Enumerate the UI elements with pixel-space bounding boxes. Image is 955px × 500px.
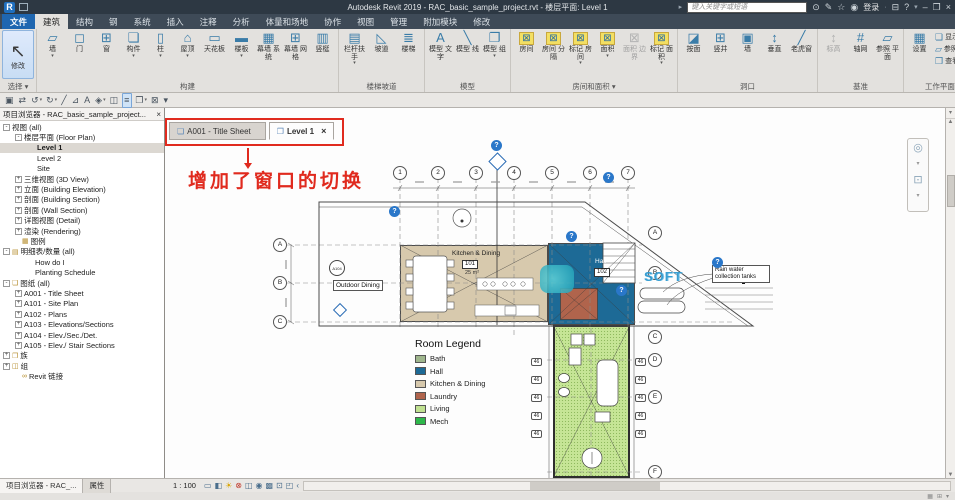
tree-item-icon: ▤ (12, 248, 19, 256)
tab-properties[interactable]: 属性 (83, 479, 111, 493)
annotation-text: 增加了窗口的切换 (188, 166, 364, 193)
view-control-icon[interactable]: ◫ (245, 480, 253, 492)
tree-item[interactable]: + ❐ 族 (0, 351, 164, 361)
tool-icon: ↕ (830, 30, 837, 46)
tool-icon: ⊞ (290, 30, 301, 46)
ribbon-tool[interactable]: ⊠ 面积 边界 (621, 30, 648, 61)
ribbon-tool[interactable]: ▦ 设置 (906, 30, 933, 54)
tree-item-icon: ❐ (12, 352, 18, 360)
grid-bubble: A (648, 226, 662, 240)
grid-bubble: 3 (469, 166, 483, 180)
modify-button[interactable]: ↖ 修改 (2, 30, 34, 79)
window-tag[interactable]: 46 (635, 358, 646, 366)
tool-icon: ❏ (935, 33, 943, 42)
tree-item[interactable]: ▦ 图例 (0, 236, 164, 246)
ribbon-tool[interactable]: ▱ 参照 平面 (935, 44, 955, 54)
view-control-icon[interactable]: ◧ (215, 480, 223, 492)
tool-icon: ▣ (741, 30, 753, 46)
expand-icon[interactable]: + (15, 290, 22, 297)
ribbon-tool[interactable]: ⊠ 房间 分隔 (540, 30, 567, 61)
tool-icon: ⊠ (546, 32, 561, 45)
qat-button[interactable]: ↻ ▾ (45, 94, 58, 107)
tree-item[interactable]: + A102 - Plans (0, 309, 164, 319)
tool-icon: ⊠ (654, 32, 669, 45)
chevron-down-icon: ▾ (606, 54, 609, 59)
tool-icon: A (436, 30, 445, 46)
grid-bubble: F (648, 465, 662, 478)
qat-button[interactable]: ▣ (4, 94, 16, 107)
ribbon-group-opening: ◪ 按面 ⊞ 竖井 ▣ 墙 ↕ 垂直 (678, 29, 818, 92)
tree-item[interactable]: + A101 - Site Plan (0, 299, 164, 309)
view-control-icon[interactable]: ◰ (286, 480, 294, 492)
tool-icon: ▦ (913, 30, 925, 46)
room-tag[interactable]: 102 (594, 268, 610, 277)
expand-icon[interactable]: + (3, 352, 10, 359)
qat-icon: ≡ (124, 94, 129, 107)
qat-icon: ▾ (164, 94, 169, 107)
ribbon-tab[interactable]: 建筑 (35, 14, 68, 29)
tree-item[interactable]: - ❏ 图纸 (all) (0, 278, 164, 288)
qat-icon: ⊠ (151, 94, 159, 107)
room-label[interactable]: Hall (595, 258, 606, 265)
tool-icon: ▱ (935, 45, 942, 54)
view-control-icon[interactable]: ⊡ (276, 480, 283, 492)
expand-icon[interactable]: + (15, 176, 22, 183)
window-tag[interactable]: 46 (531, 376, 542, 384)
chevron-down-icon: ▾ (186, 54, 189, 59)
view-control-icon[interactable]: ‹ (296, 480, 299, 492)
app-store-dropdown-icon[interactable]: · (884, 4, 886, 11)
legend-swatch (415, 380, 426, 388)
navigation-bar[interactable]: ◎ ▾ ⊡ ▾ (907, 138, 929, 212)
chevron-down-icon: ▾ (132, 54, 135, 59)
tree-item[interactable]: + 详图视图 (Detail) (0, 216, 164, 226)
project-browser-tree: - 视图 (all) - 楼层平面 (Floor Plan) Level 1 (0, 121, 164, 478)
tool-icon: ↕ (771, 30, 778, 46)
grid-bubble: C (273, 315, 287, 329)
ribbon-group-circulation: ▤ 栏杆扶手 ▾ ◺ 坡道 ≣ 楼梯 楼梯坡道 (339, 29, 425, 92)
ribbon-tab[interactable]: 修改 (465, 14, 498, 29)
ribbon-tool[interactable]: ↕ 垂直 (761, 30, 788, 54)
expand-icon[interactable]: + (15, 321, 22, 328)
ribbon-tool[interactable]: ▭ 天花板 (201, 30, 228, 54)
tree-item[interactable]: + 三维视图 (3D View) (0, 174, 164, 184)
app-store-cart-icon[interactable]: ⊟ (892, 1, 900, 13)
help-marker-icon[interactable]: ? (566, 231, 577, 242)
help-dropdown-icon[interactable]: ▾ (914, 3, 918, 11)
tree-item[interactable]: - ▤ 明细表/数量 (all) (0, 247, 164, 257)
ribbon-tab-bar: 文件 建筑 结构 钢 系统 插入 注释 分析 体量和场地 协作 视图 管理 附加… (0, 14, 955, 29)
tree-item[interactable]: Site (0, 164, 164, 174)
tree-item[interactable]: Planting Schedule (0, 267, 164, 277)
modify-cursor-icon: ↖ (10, 39, 25, 63)
help-marker-icon[interactable]: ? (712, 257, 723, 268)
ribbon-tool[interactable]: ◺ 坡道 (368, 30, 395, 54)
status-bar: ▦ ⊞ ▾ (0, 492, 955, 500)
annotation-arrow (247, 148, 249, 164)
tool-icon: ▤ (348, 30, 360, 46)
ribbon-group-build: ▱ 墙 ▾ ◻ 门 ⊞ 窗 ❏ 构件 (37, 29, 339, 92)
room-legend: Room Legend Bath Hall (415, 338, 485, 429)
tree-item[interactable]: How do I (0, 257, 164, 267)
ribbon-tab[interactable]: 分析 (225, 14, 258, 29)
signin-label[interactable]: 登录 (863, 2, 879, 13)
design-options-icon[interactable]: ⊞ (937, 493, 942, 500)
window-tag-column: 4646464646 (635, 358, 646, 438)
ribbon-tool[interactable]: ▣ 墙 (734, 30, 761, 54)
qat-button[interactable]: ❐ ▾ (134, 94, 148, 107)
tree-item[interactable]: + A001 - Title Sheet (0, 288, 164, 298)
ribbon-tool[interactable]: ▥ 竖梃 (309, 30, 336, 54)
room-area-label: 25 m² (465, 270, 479, 276)
qat-icon: ⇄ (19, 94, 27, 107)
panel-tabs: 项目浏览器 - RAC_... 属性 (0, 479, 165, 493)
search-expand-icon[interactable]: ▸ (679, 3, 683, 11)
tree-item[interactable]: Level 2 (0, 153, 164, 163)
help-marker-icon[interactable]: ? (389, 206, 400, 217)
window-tag[interactable]: 46 (531, 430, 542, 438)
legend-swatch (415, 405, 426, 413)
ribbon-tab[interactable]: 文件 (2, 14, 35, 29)
window-tag[interactable]: 46 (635, 394, 646, 402)
ribbon-group-room-area: ⊠ 房间 ⊠ 房间 分隔 ⊠ 标记 房间 ▾ ⊠ (511, 29, 678, 92)
ribbon-tab[interactable]: 钢 (101, 14, 126, 29)
view-control-icon[interactable]: ◉ (256, 480, 263, 492)
chevron-down-icon: ▾ (159, 54, 162, 59)
chevron-down-icon: ▾ (353, 61, 356, 66)
ribbon-tool[interactable]: ⊠ 标记 房间 ▾ (567, 30, 594, 66)
window-tag[interactable]: 46 (635, 430, 646, 438)
tree-item[interactable]: Level 1 (0, 143, 164, 153)
grid-bubble: D (648, 353, 662, 367)
ribbon-tab[interactable]: 管理 (382, 14, 415, 29)
qat-icon: ↺ (31, 94, 39, 107)
legend-entry: Mech (415, 417, 485, 426)
ribbon-tool[interactable]: ⊠ 面积 ▾ (594, 30, 621, 59)
tool-icon: ╲ (464, 30, 472, 46)
search-input[interactable]: 键入关键字或短语 (687, 2, 807, 13)
legend-entry: Bath (415, 354, 485, 363)
qat-icon: ⊿ (72, 94, 80, 107)
window-switch-icon[interactable] (19, 3, 28, 11)
ribbon-tab[interactable]: 协作 (316, 14, 349, 29)
grid-bubble: C (648, 330, 662, 344)
outdoor-dining-label[interactable]: Outdoor Dining (333, 280, 383, 291)
chevron-down-icon[interactable]: ▾ (916, 190, 919, 202)
room-label[interactable]: Kitchen & Dining (452, 250, 500, 257)
qat-icon: ╱ (61, 94, 66, 107)
tree-item[interactable]: - 视图 (all) (0, 122, 164, 132)
view-scale[interactable]: 1 : 100 (165, 481, 204, 490)
ribbon-tool[interactable]: ⊠ 标记 面积 ▾ (648, 30, 675, 66)
help-marker-icon[interactable]: ? (603, 172, 614, 183)
grid-bubble: 4 (507, 166, 521, 180)
expand-icon[interactable]: + (15, 196, 22, 203)
ribbon-tool[interactable]: ╱ 老虎窗 (788, 30, 815, 54)
window-tag[interactable]: 46 (531, 412, 542, 420)
help-marker-icon[interactable]: ? (616, 285, 627, 296)
tool-icon: ❒ (935, 57, 943, 66)
zoom-cube-icon[interactable]: ⊡ (913, 174, 922, 186)
qat-icon: ◈ (95, 94, 102, 107)
ribbon-group-label: 构建 (39, 81, 336, 92)
tool-icon: ▦ (262, 30, 274, 46)
ribbon-tool[interactable]: ⊞ 窗 (93, 30, 120, 54)
chevron-down-icon: ▾ (103, 94, 106, 107)
tree-item-icon: ❏ (12, 279, 18, 287)
ribbon-tool[interactable]: ❏ 构件 ▾ (120, 30, 147, 59)
ribbon-tool[interactable]: ▱ 墙 ▾ (39, 30, 66, 59)
quick-access-toolbar: ▣ ⇄ ↺ ▾ ↻ ▾ ╱ ⊿ A ◈ (0, 93, 955, 108)
ribbon-tool[interactable]: ▤ 栏杆扶手 ▾ (341, 30, 368, 66)
grid-bubble: 1 (393, 166, 407, 180)
ribbon-tool[interactable]: ▬ 楼板 ▾ (228, 30, 255, 59)
window-tag[interactable]: 46 (531, 358, 542, 366)
grid-bubble: 7 (621, 166, 635, 180)
grid-bubble: B (273, 276, 287, 290)
expand-icon[interactable]: + (15, 207, 22, 214)
tool-icon: ⊞ (101, 30, 112, 46)
rain-water-note[interactable]: Rain water collection tanks (712, 265, 770, 283)
expand-icon[interactable]: + (15, 217, 22, 224)
tool-icon: ❏ (128, 30, 140, 46)
ribbon: ↖ 修改 选择 ▾ ▱ 墙 ▾ ◻ 门 (0, 29, 955, 93)
view-control-icon[interactable]: ▭ (204, 480, 212, 492)
column-grid-bubbles: 1234567 (393, 166, 635, 180)
scroll-up-icon[interactable]: ▲ (948, 119, 954, 125)
minimize-icon[interactable]: – (923, 1, 928, 13)
qat-button[interactable]: ◈ ▾ (94, 94, 106, 107)
tree-item[interactable]: + 剖面 (Building Section) (0, 195, 164, 205)
legend-swatch (415, 392, 426, 400)
view-control-icon[interactable]: ⊗ (235, 480, 242, 492)
ribbon-tool[interactable]: ⊠ 房间 (513, 30, 540, 54)
chevron-down-icon: ▾ (240, 54, 243, 59)
view-control-icon[interactable]: ▩ (265, 480, 273, 492)
ribbon-tab[interactable]: 视图 (349, 14, 382, 29)
ribbon-group-select: ↖ 修改 选择 ▾ (0, 29, 37, 92)
search-icon[interactable]: ⊙ (812, 1, 820, 13)
watermark: SOFT (644, 269, 683, 284)
tab-project-browser[interactable]: 项目浏览器 - RAC_... (0, 479, 83, 493)
worksets-icon[interactable]: ▦ (927, 493, 933, 500)
scrollbar-thumb[interactable] (947, 175, 955, 207)
tree-item[interactable]: + A103 - Elevations/Sections (0, 319, 164, 329)
ribbon-tool[interactable]: ❏ 显示 (935, 32, 955, 42)
qat-button[interactable]: ↺ ▾ (30, 94, 43, 107)
tree-item[interactable]: - 楼层平面 (Floor Plan) (0, 132, 164, 142)
grid-bubble: 6 (583, 166, 597, 180)
ribbon-group-label[interactable]: 房间和面积 ▾ (513, 81, 675, 92)
ribbon-tool[interactable]: ◪ 按面 (680, 30, 707, 54)
legend-entry: Living (415, 404, 485, 413)
chevron-down-icon: ▾ (55, 94, 58, 107)
project-browser-title: 项目浏览器 - RAC_basic_sample_project... × (0, 108, 164, 121)
bottom-bar: 项目浏览器 - RAC_... 属性 1 : 100 ▭ ◧ ☀ ⊗ ◫ ◉ ▩… (0, 478, 955, 492)
qat-button[interactable]: ⊠ (150, 94, 161, 107)
qat-button[interactable]: ⇄ (18, 94, 29, 107)
qat-icon: ❐ (135, 94, 143, 107)
close-icon[interactable]: × (156, 110, 161, 119)
room-legend-title: Room Legend (415, 338, 485, 350)
ribbon-tab[interactable]: 附加模块 (415, 14, 465, 29)
ribbon-tool[interactable]: ╲ 模型 线 (454, 30, 481, 54)
grid-bubble: 5 (545, 166, 559, 180)
qat-icon: A (84, 94, 90, 107)
legend-entry: Laundry (415, 392, 485, 401)
ribbon-tab[interactable]: 插入 (159, 14, 192, 29)
ribbon-tool[interactable]: ❐ 模型 组 ▾ (481, 30, 508, 59)
chevron-down-icon: ▾ (579, 61, 582, 66)
window-tag[interactable]: 46 (531, 394, 542, 402)
detail-callout-marker[interactable]: A104 (329, 260, 345, 276)
ribbon-tab[interactable]: 结构 (68, 14, 101, 29)
qat-icon: ↻ (46, 94, 54, 107)
tool-icon: # (857, 30, 864, 46)
legend-swatch (415, 417, 426, 425)
ribbon-tool[interactable]: ⊞ 幕墙 网格 (282, 30, 309, 61)
chevron-down-icon: ▾ (660, 61, 663, 66)
filter-icon[interactable]: ▾ (946, 493, 949, 500)
room-tag[interactable]: 101 (462, 260, 478, 269)
tool-icon: ◺ (377, 30, 387, 46)
ribbon-tool[interactable]: ⌂ 屋顶 ▾ (174, 30, 201, 59)
restore-icon[interactable]: ❐ (933, 1, 941, 13)
tool-icon: ▱ (48, 30, 58, 46)
tree-item[interactable]: + 立面 (Building Elevation) (0, 184, 164, 194)
ribbon-group-label[interactable]: 选择 ▾ (2, 81, 34, 92)
expand-icon[interactable]: - (15, 134, 22, 141)
expand-icon[interactable]: - (3, 248, 10, 255)
ribbon-group-label: 模型 (427, 81, 508, 92)
tool-icon: ◻ (74, 30, 85, 46)
account-icon[interactable]: ◉ (850, 1, 858, 13)
ribbon-group-label: 工作平面 (906, 81, 955, 92)
ribbon-tool[interactable]: # 轴网 (847, 30, 874, 54)
qat-icon: ▣ (5, 94, 14, 107)
qat-button[interactable]: ◫ (109, 94, 121, 107)
view-control-icon[interactable]: ☀ (225, 480, 232, 492)
tool-icon: ▱ (883, 30, 893, 46)
expand-icon[interactable]: + (15, 342, 22, 349)
ribbon-tool[interactable]: ▯ 柱 ▾ (147, 30, 174, 59)
feedback-icon[interactable]: ✎ (825, 1, 833, 13)
tool-icon: ▬ (235, 30, 248, 46)
ribbon-tool[interactable]: ↕ 标高 (820, 30, 847, 54)
chevron-down-icon[interactable]: ▾ (916, 158, 919, 170)
selected-element-highlight[interactable] (540, 265, 574, 293)
revit-logo-icon[interactable]: R (4, 2, 15, 13)
expand-icon[interactable]: + (15, 332, 22, 339)
expand-icon[interactable]: + (3, 363, 10, 370)
annotation-highlight-box (165, 118, 344, 146)
tool-icon: ▯ (157, 30, 164, 46)
tool-icon: ❐ (489, 30, 501, 46)
window-tag-column: 4646464646 (531, 358, 542, 438)
qat-button[interactable]: ≡ (122, 93, 132, 108)
help-icon[interactable]: ? (904, 1, 909, 13)
scrollbar-thumb[interactable] (530, 482, 660, 490)
ribbon-group-label: 基准 (820, 81, 901, 92)
legend-swatch (415, 355, 426, 363)
plan-annotations-layer: 1234567 A B C A B C D E F ? ? ? ? ? ? A1… (165, 108, 945, 478)
window-tag[interactable]: 46 (635, 412, 646, 420)
close-icon[interactable]: × (946, 1, 951, 13)
scrollbar-menu-icon[interactable]: ▾ (946, 108, 955, 119)
tool-icon: ⊠ (629, 30, 640, 46)
view-control-bar: ▭ ◧ ☀ ⊗ ◫ ◉ ▩ ⊡ ◰ ‹ (204, 480, 299, 492)
ribbon-tool[interactable]: ❒ 查看器 (935, 56, 955, 66)
expand-icon[interactable]: + (15, 311, 22, 318)
help-marker-icon[interactable]: ? (491, 140, 502, 151)
tree-item-icon: ◫ (12, 362, 19, 370)
expand-icon[interactable]: - (3, 124, 10, 131)
qat-button[interactable]: ╱ (60, 94, 68, 107)
tree-item[interactable]: + A105 - Elev./ Stair Sections (0, 340, 164, 350)
ribbon-tool[interactable]: ▱ 参照 平面 (874, 30, 901, 61)
ribbon-tool[interactable]: ◻ 门 (66, 30, 93, 54)
tree-item[interactable]: + 渲染 (Rendering) (0, 226, 164, 236)
tool-icon: ▥ (316, 30, 328, 46)
ribbon-tool[interactable]: A 模型 文字 (427, 30, 454, 61)
scroll-down-icon[interactable]: ▼ (948, 472, 954, 478)
tool-icon: ⊞ (715, 30, 726, 46)
legend-entry: Hall (415, 367, 485, 376)
tool-icon: ⌂ (184, 30, 192, 46)
favorites-star-icon[interactable]: ☆ (837, 1, 845, 13)
ribbon-tool[interactable]: ⊞ 竖井 (707, 30, 734, 54)
window-tag[interactable]: 46 (635, 376, 646, 384)
expand-icon[interactable]: + (15, 186, 22, 193)
ribbon-group-label: 楼梯坡道 (341, 81, 422, 92)
ribbon-tab[interactable]: 系统 (126, 14, 159, 29)
grid-bubble: 2 (431, 166, 445, 180)
ribbon-group-workplane: ▦ 设置 ❏ 显示 ▱ 参照 平面 (904, 29, 955, 92)
grid-bubble: E (648, 390, 662, 404)
tree-item[interactable]: + A104 - Elev./Sec./Det. (0, 330, 164, 340)
project-browser-panel: 项目浏览器 - RAC_basic_sample_project... × - … (0, 108, 165, 478)
qat-button[interactable]: ⊿ (71, 94, 82, 107)
ribbon-tab[interactable]: 体量和场地 (258, 14, 317, 29)
tool-icon: ▭ (208, 30, 220, 46)
horizontal-scrollbar[interactable] (303, 481, 951, 491)
ribbon-group-model: A 模型 文字 ╲ 模型 线 ❐ 模型 组 ▾ 模型 (425, 29, 511, 92)
tree-item[interactable]: ∞ Revit 链接 (0, 371, 164, 381)
expand-icon[interactable]: + (15, 300, 22, 307)
chevron-down-icon: ▾ (144, 94, 147, 107)
expand-icon[interactable]: - (3, 280, 10, 287)
tool-icon: ◪ (687, 30, 699, 46)
tool-icon: ⊠ (573, 32, 588, 45)
vertical-scrollbar[interactable]: ▾ ▲ ▼ (945, 108, 955, 478)
ribbon-tool[interactable]: ▦ 幕墙 系统 (255, 30, 282, 61)
tool-icon: ⊠ (519, 32, 534, 45)
expand-icon[interactable]: + (15, 228, 22, 235)
ribbon-group-datum: ↕ 标高 # 轴网 ▱ 参照 平面 基准 (818, 29, 904, 92)
drawing-canvas[interactable]: 1234567 A B C A B C D E F ? ? ? ? ? ? A1… (165, 108, 945, 478)
ribbon-tab[interactable]: 注释 (192, 14, 225, 29)
elevation-marker[interactable] (333, 303, 347, 317)
tool-icon: ╱ (798, 30, 806, 46)
ribbon-tool[interactable]: ≣ 楼梯 (395, 30, 422, 54)
steering-wheel-icon[interactable]: ◎ (913, 142, 923, 154)
tree-item[interactable]: + 剖面 (Wall Section) (0, 205, 164, 215)
chevron-down-icon: ▾ (40, 94, 43, 107)
qat-button[interactable]: A (83, 94, 92, 107)
tree-item[interactable]: + ◫ 组 (0, 361, 164, 371)
qat-button[interactable]: ▾ (163, 94, 171, 107)
qat-icon: ◫ (110, 94, 119, 107)
